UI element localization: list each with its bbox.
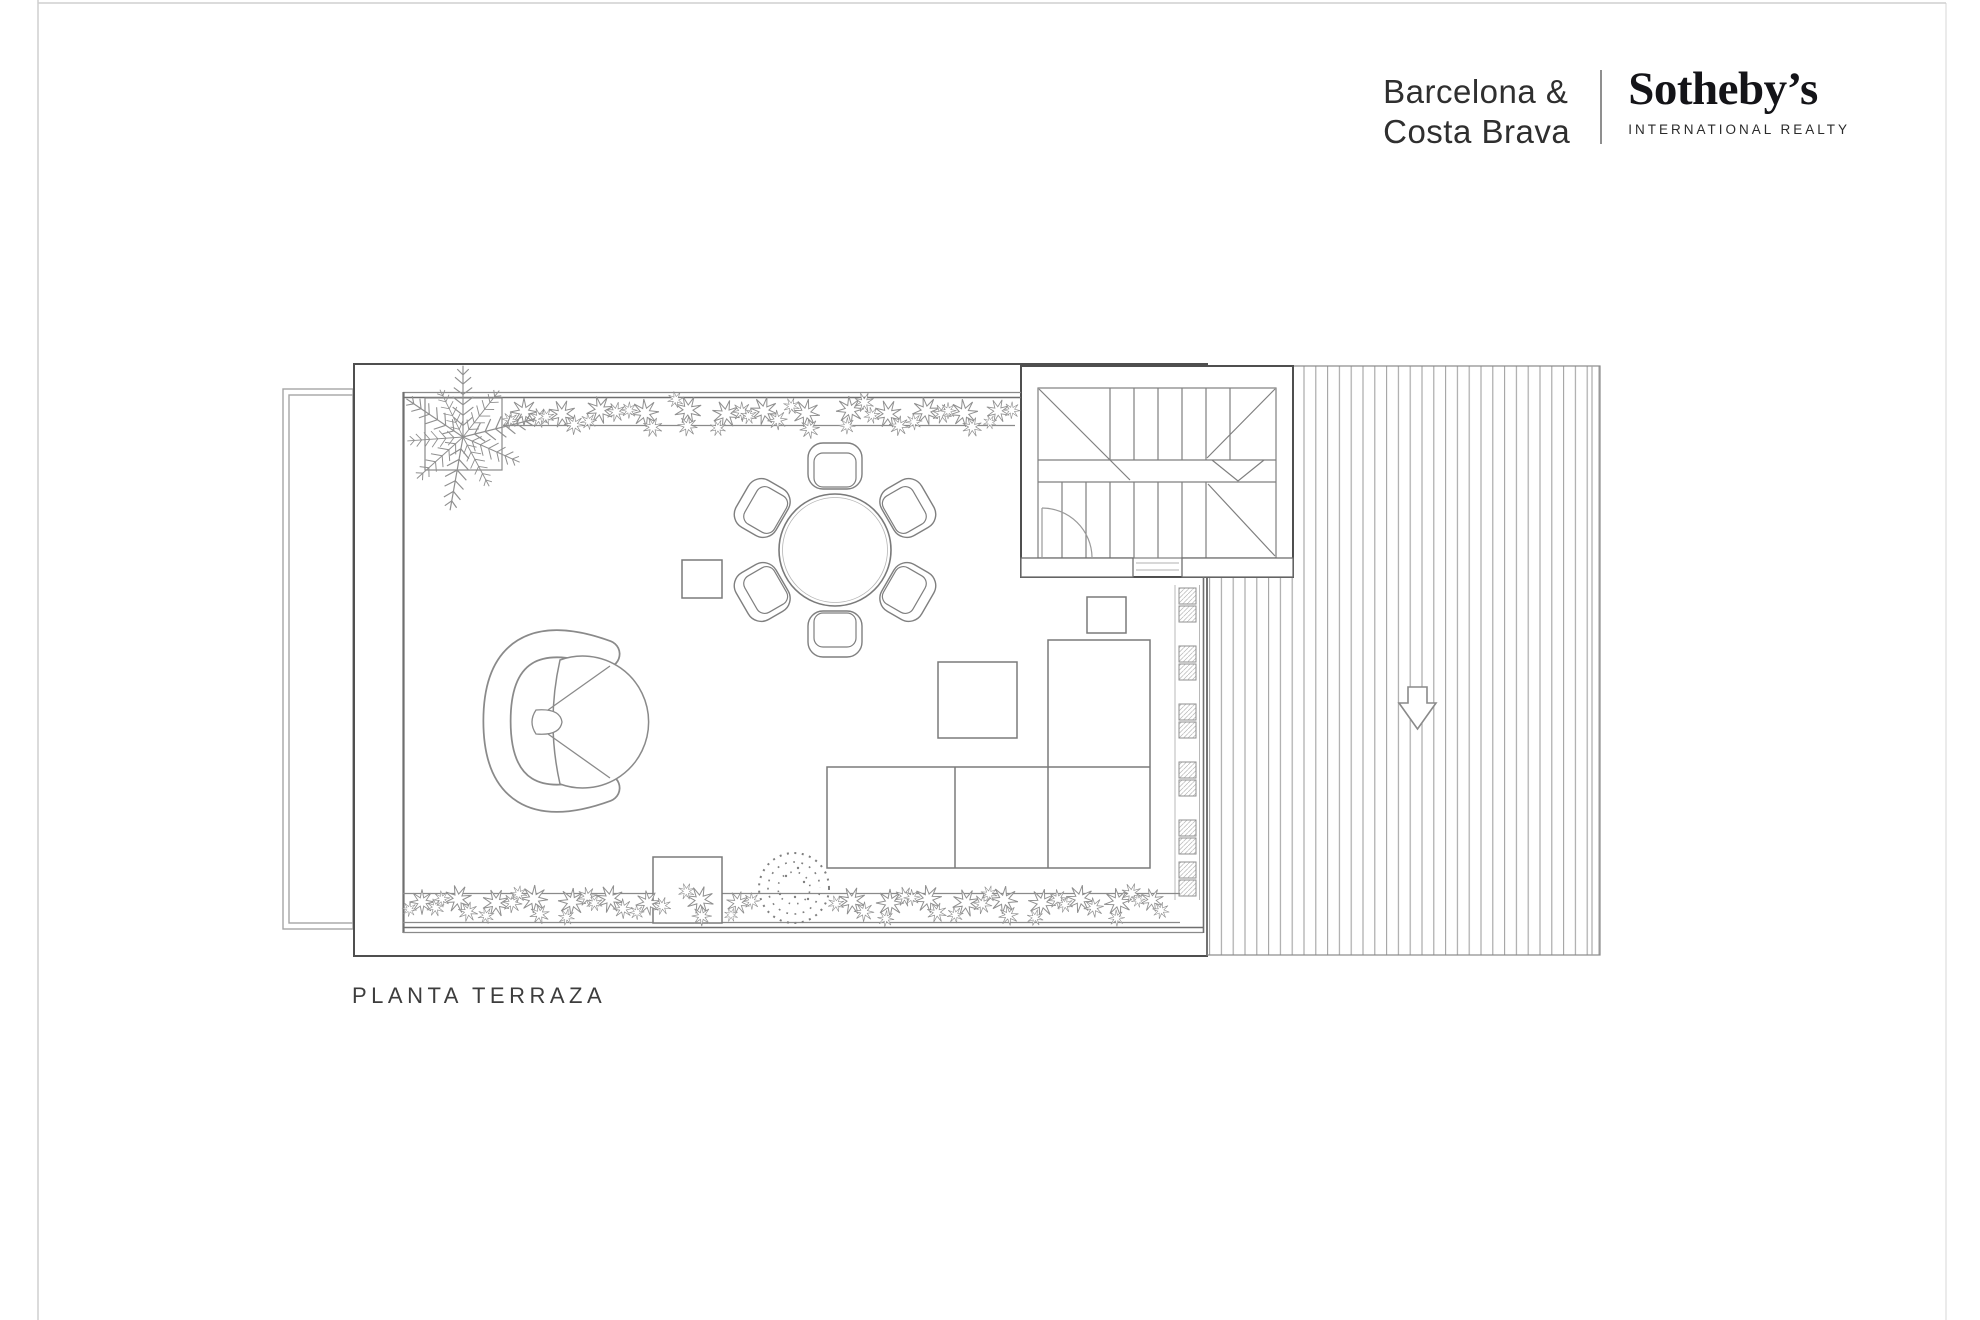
side-annex bbox=[283, 389, 353, 929]
plan-title: PLANTA TERRAZA bbox=[352, 983, 606, 1009]
side-table-small bbox=[682, 560, 722, 598]
brand-divider bbox=[1600, 70, 1602, 144]
coffee-table bbox=[938, 662, 1017, 738]
brand-name: Sotheby’s bbox=[1628, 66, 1850, 113]
brand-region-line1: Barcelona & bbox=[1383, 72, 1570, 112]
dining-chair bbox=[808, 443, 862, 489]
side-table-near-stairs bbox=[1087, 597, 1126, 633]
dining-table bbox=[779, 494, 891, 606]
brand-wordmark: Sotheby’s INTERNATIONAL REALTY bbox=[1628, 66, 1850, 137]
brand-subtitle: INTERNATIONAL REALTY bbox=[1628, 122, 1850, 137]
floor-plan-drawing bbox=[0, 0, 1980, 1320]
dining-chair bbox=[808, 611, 862, 657]
brand-region-name: Barcelona & Costa Brava bbox=[1383, 72, 1570, 152]
brand-region-line2: Costa Brava bbox=[1383, 112, 1570, 152]
staircase bbox=[1021, 366, 1293, 577]
page: Barcelona & Costa Brava Sotheby’s INTERN… bbox=[0, 0, 1980, 1320]
brand-logo: Barcelona & Costa Brava Sotheby’s INTERN… bbox=[1383, 66, 1850, 152]
